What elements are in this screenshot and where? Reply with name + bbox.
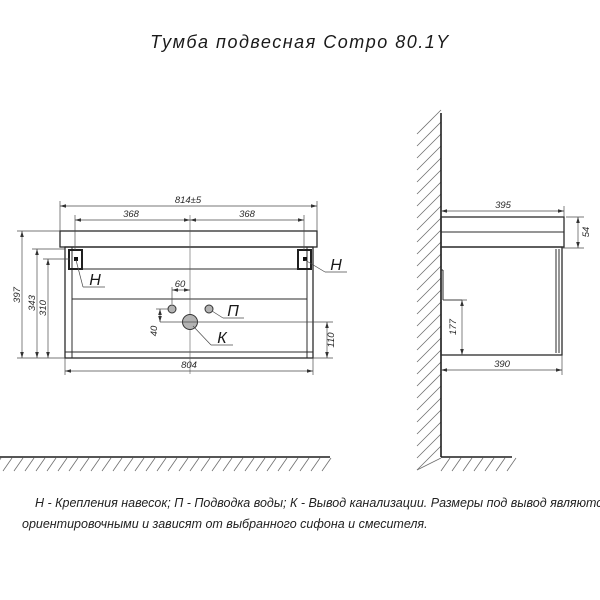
note-line-1: Н - Крепления навесок; П - Подводка воды… [35,496,600,510]
arrowhead [441,209,447,213]
arrowhead [311,204,317,208]
arrowhead [158,309,162,315]
dimension-arrowheads [20,204,580,373]
arrowhead [20,231,24,237]
arrowhead [35,352,39,358]
arrowhead [75,218,81,222]
arrowhead [558,209,564,213]
side-view: 395 54 177 390 [441,200,592,375]
label-bracket-right: Н [330,257,342,274]
arrowhead [556,368,562,372]
arrowhead [576,242,580,248]
arrowhead [298,218,304,222]
arrowhead [441,368,447,372]
arrowhead [307,369,313,373]
note-line-2: ориентировочными и зависят от выбранного… [22,517,428,531]
dim-overall-width: 814±5 [175,195,202,206]
side-dimension-lines [441,211,578,370]
dim-top-depth: 395 [495,200,512,211]
dim-drain-height: 110 [326,332,337,348]
dim-bracket-height: 310 [38,299,49,316]
technical-drawing: Тумба подвесная Compo 80.1Y [0,0,600,600]
note-block: Н - Крепления навесок; П - Подводка воды… [22,496,600,531]
drawing-title: Тумба подвесная Compo 80.1Y [150,32,450,52]
dim-bracket-right-span: 368 [239,209,256,220]
label-water-supply: П [227,303,239,320]
dim-water-to-drain: 40 [149,325,160,336]
arrowhead [190,218,196,222]
environment [0,110,516,471]
arrowhead [325,322,329,328]
front-body [65,247,313,358]
dim-overall-height: 397 [12,286,23,303]
arrowhead [20,352,24,358]
front-view: 814±5 368 368 397 343 310 60 40 110 804 … [12,195,347,375]
arrowhead [158,316,162,322]
side-extension-lines [443,206,584,375]
dim-bracket-left-span: 368 [123,209,140,220]
front-callouts: Н Н П К [76,257,347,347]
label-bracket-left: Н [89,272,101,289]
arrowhead [60,204,66,208]
label-drain: К [217,330,228,347]
dim-body-height: 343 [27,294,38,311]
arrowhead [460,300,464,306]
arrowhead [184,288,190,292]
arrowhead [184,218,190,222]
water-port-left [168,305,176,313]
arrowhead [576,217,580,223]
dim-top-height: 54 [581,227,592,238]
dim-body-depth: 390 [494,359,511,370]
arrowhead [46,259,50,265]
side-body [441,247,562,355]
arrowhead [35,249,39,255]
wall-hatch [417,110,441,470]
dim-notch-height: 177 [448,318,459,335]
drawing-page: Тумба подвесная Compo 80.1Y [0,0,600,600]
dim-body-width: 804 [181,360,197,371]
arrowhead [460,349,464,355]
arrowhead [325,352,329,358]
front-countertop [60,231,317,247]
arrowhead [65,369,71,373]
water-port-right [205,305,213,313]
arrowhead [46,352,50,358]
floor-hatch-right [441,458,516,471]
floor-hatch-left [0,458,331,471]
